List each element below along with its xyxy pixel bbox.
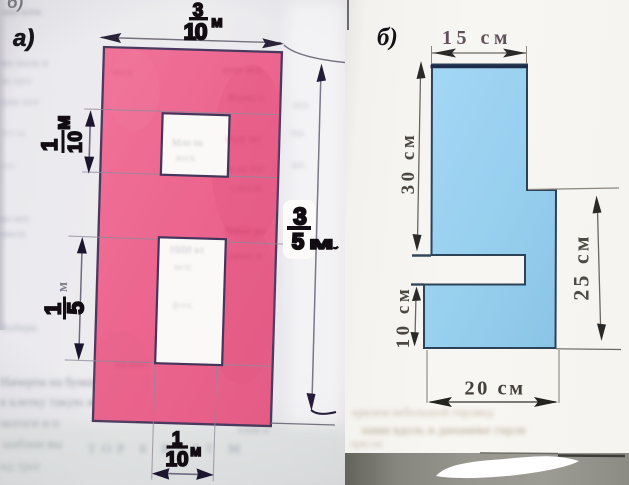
svg-text:б): б) <box>7 0 24 12</box>
svg-text:а): а) <box>13 25 34 52</box>
svg-text:м: м <box>53 115 75 130</box>
svg-text:м: м <box>309 233 334 253</box>
svg-text:30 см: 30 см <box>398 132 419 195</box>
svg-text:5: 5 <box>292 229 304 254</box>
svg-text:20 см: 20 см <box>464 378 525 400</box>
svg-text:10 см: 10 см <box>393 286 414 349</box>
svg-text:10: 10 <box>166 448 189 471</box>
svg-text:м: м <box>190 443 201 460</box>
svg-text:10: 10 <box>66 131 87 153</box>
svg-text:25 см: 25 см <box>569 233 594 300</box>
svg-text:5: 5 <box>63 301 89 314</box>
svg-text:10: 10 <box>184 19 208 45</box>
svg-text:1: 1 <box>37 139 62 151</box>
svg-text:м: м <box>211 14 223 31</box>
svg-text:15 см: 15 см <box>442 27 512 49</box>
svg-text:б): б) <box>377 24 398 51</box>
svg-text:м: м <box>55 282 71 292</box>
